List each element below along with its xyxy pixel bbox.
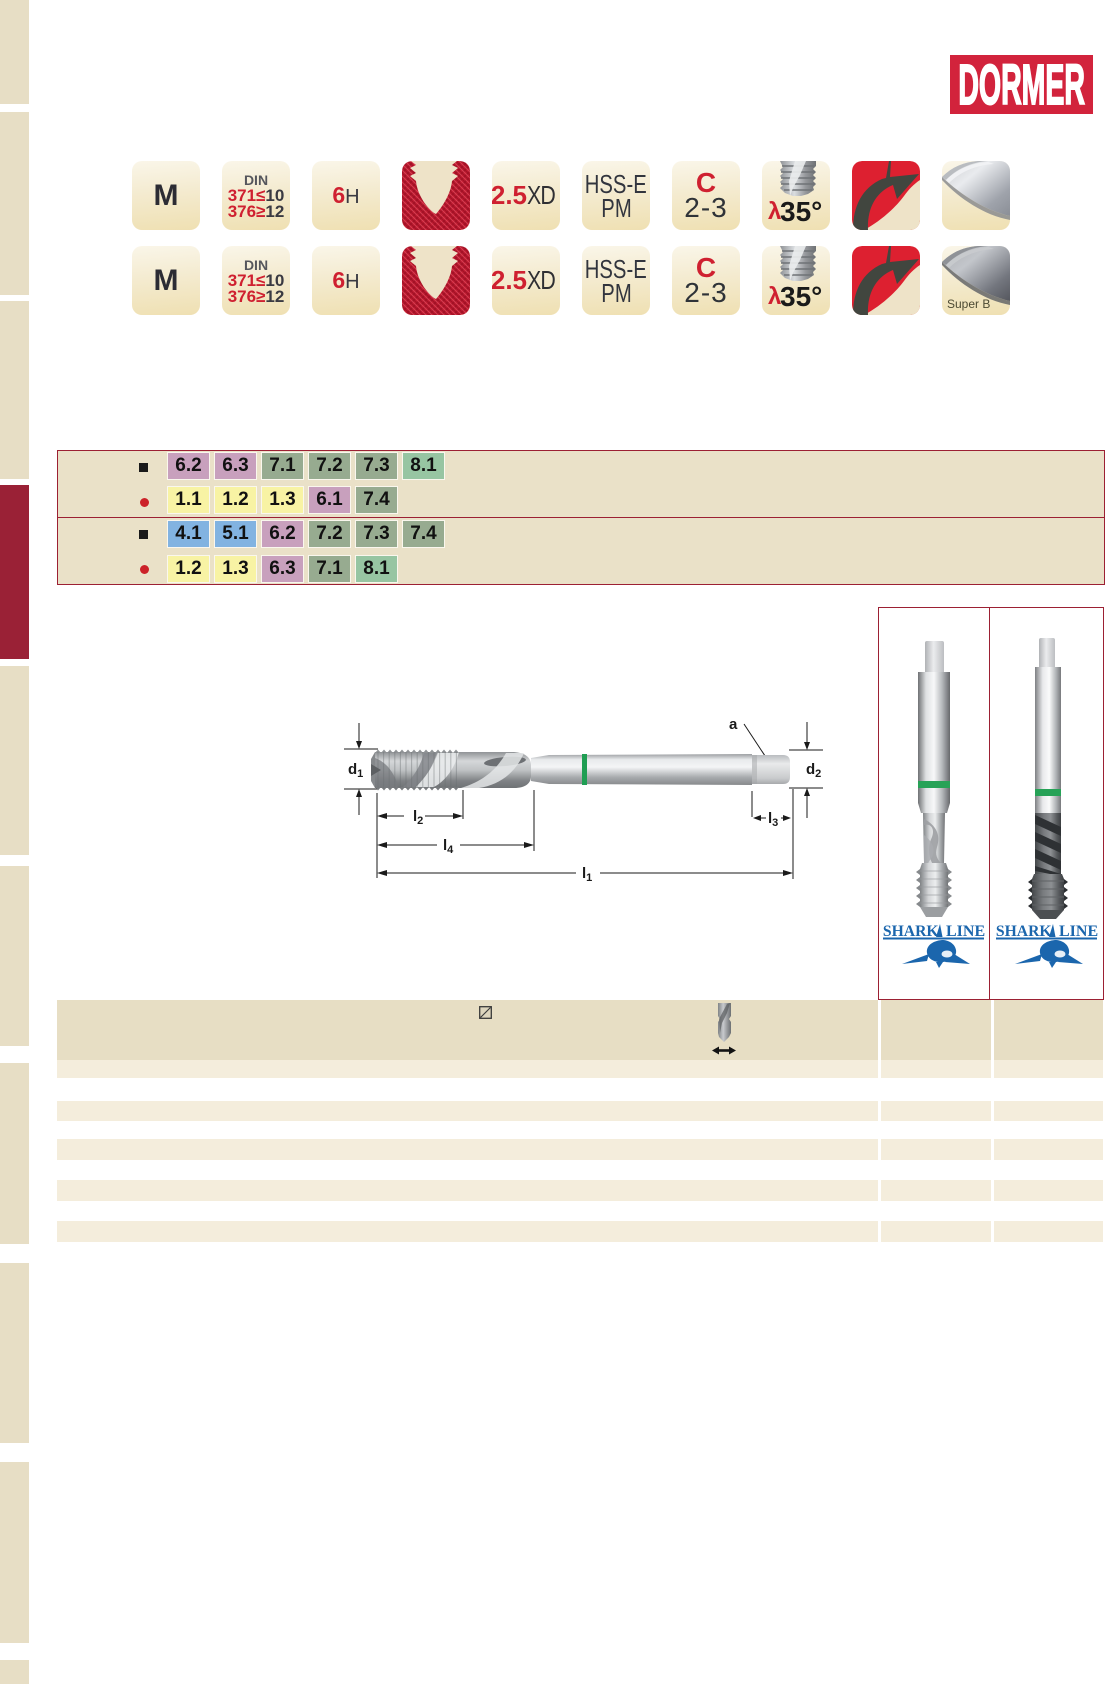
svg-text:a: a	[729, 716, 738, 733]
svg-text:l3: l3	[768, 810, 778, 829]
svg-text:d2: d2	[806, 761, 821, 780]
svg-text:SHARK: SHARK	[996, 923, 1052, 940]
svg-text:l1: l1	[582, 865, 592, 884]
svg-text:l4: l4	[443, 837, 454, 856]
svg-text:LINE: LINE	[1059, 923, 1098, 940]
svg-text:l2: l2	[413, 808, 423, 827]
svg-text:35°: 35°	[780, 281, 822, 312]
svg-text:LINE: LINE	[946, 923, 985, 940]
svg-text:SHARK: SHARK	[883, 923, 939, 940]
svg-text:d1: d1	[348, 761, 363, 780]
svg-text:35°: 35°	[780, 196, 822, 227]
svg-text:Super B: Super B	[947, 297, 990, 311]
